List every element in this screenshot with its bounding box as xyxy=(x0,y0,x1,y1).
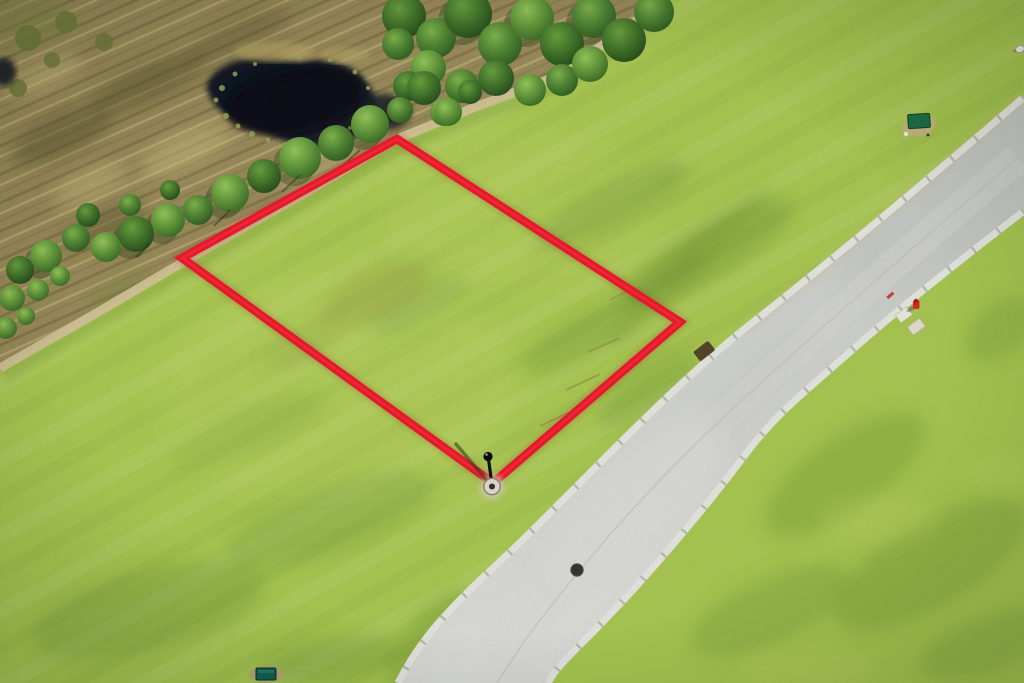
aerial-photo: Aerial drone photo of a vacant grass res… xyxy=(0,0,1024,683)
vignette xyxy=(0,0,1024,683)
aerial-photo-canvas xyxy=(0,0,1024,683)
